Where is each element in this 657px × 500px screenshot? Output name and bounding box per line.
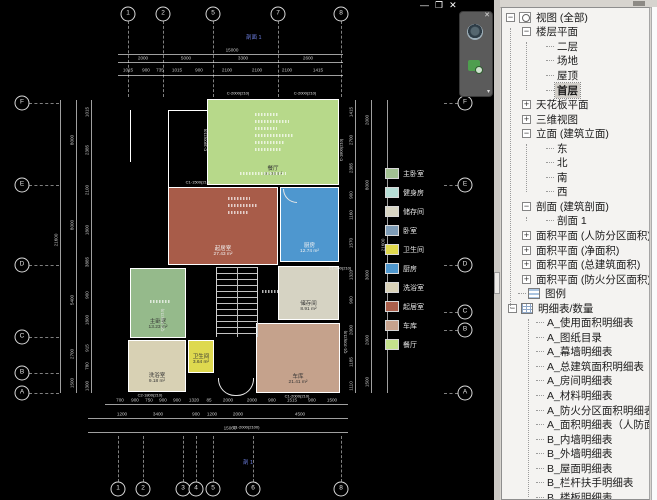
tree-item-A_材料明细表[interactable]: A_材料明细表 (502, 388, 649, 403)
annotation-mark (150, 300, 170, 303)
dim-label: 1160 (349, 210, 354, 220)
dimension-line (355, 100, 356, 393)
tree-scrollbar[interactable] (651, 7, 657, 500)
dim-label: 2385 (85, 145, 90, 155)
dim-label: 2100 (222, 68, 232, 73)
section-mark[interactable]: 剖 1 (243, 458, 253, 466)
grid-bubble-2[interactable]: 2 (136, 482, 151, 497)
tree-item-label: 东 (555, 141, 570, 156)
grid-line (444, 103, 458, 104)
dim-label: 2000 (365, 335, 370, 345)
legend-item[interactable]: 车库 (385, 316, 424, 335)
dim-label: 2000 (349, 325, 354, 335)
dim-label: 8000 (70, 135, 75, 145)
grid-bubble-D[interactable]: D (15, 258, 30, 273)
project-browser-tree: −视图 (全部)−楼层平面二层场地屋顶首层+天花板平面+三维视图−立面 (建筑立… (501, 7, 650, 500)
tree-item-label: B_屋面明细表 (545, 461, 614, 476)
legend-label: 厨房 (403, 264, 417, 274)
tree-item-label: A_图纸目录 (545, 330, 604, 345)
dim-label: 1300 (85, 381, 90, 391)
tree-item-图例[interactable]: 图例 (502, 286, 649, 301)
wall-tag[interactable]: C-1800(210) (339, 139, 344, 161)
grid-bubble-1[interactable]: 1 (111, 482, 126, 497)
dimension-line (60, 100, 61, 393)
dim-label: 21600 (54, 234, 59, 247)
tree-item-label: A_总建筑面积明细表 (545, 359, 646, 374)
tree-connector (536, 337, 544, 338)
annotation-mark (228, 197, 250, 200)
legend-item[interactable]: 健身房 (385, 183, 424, 202)
expand-icon[interactable]: + (522, 246, 531, 255)
dim-label: 2000 (233, 412, 243, 417)
dim-label: 900 (131, 398, 139, 403)
dim-label: 900 (85, 291, 90, 299)
grid-bubble-2[interactable]: 2 (156, 7, 171, 22)
tree-item-label: 屋顶 (555, 68, 580, 83)
panel-header-button[interactable] (633, 1, 645, 6)
dim-label: 1415 (313, 68, 323, 73)
tree-connector (536, 322, 544, 323)
grid-line (444, 393, 458, 394)
grid-line (196, 436, 197, 482)
grid-line (341, 21, 342, 97)
tree-item-首层[interactable]: 首层 (502, 83, 649, 98)
grid-line (278, 21, 279, 97)
collapse-icon[interactable]: − (522, 129, 531, 138)
grid-bubble-F[interactable]: F (15, 96, 30, 111)
dim-label: 900 (195, 68, 203, 73)
tree-item-面积平面--人防分区面积-[interactable]: +面积平面 (人防分区面积) (502, 228, 649, 243)
tree-connector (518, 293, 526, 294)
grid-bubble-4[interactable]: 4 (189, 482, 204, 497)
legend-swatch (385, 225, 399, 236)
legend-item[interactable]: 卫生间 (385, 240, 424, 259)
table-icon (521, 303, 533, 314)
expand-icon[interactable]: + (522, 231, 531, 240)
tree-item-剖面--建筑剖面-[interactable]: −剖面 (建筑剖面) (502, 199, 649, 214)
grid-bubble-A[interactable]: A (458, 386, 473, 401)
legend-item[interactable]: 储存间 (385, 202, 424, 221)
legend-label: 主卧室 (403, 169, 424, 179)
tree-item-label: 明细表/数量 (536, 301, 595, 316)
tree-item-三维视图[interactable]: +三维视图 (502, 112, 649, 127)
tree-connector (536, 482, 544, 483)
tree-item-视图--全部-[interactable]: −视图 (全部) (502, 10, 649, 25)
dim-label: 2000 (365, 115, 370, 125)
tree-item-A_总建筑面积明细表[interactable]: A_总建筑面积明细表 (502, 359, 649, 374)
room-area: 8.91 m² (300, 307, 316, 313)
tree-item-label: B_栏杆扶手明细表 (545, 475, 635, 490)
room-起居室[interactable]: 起居室27.43 m² (168, 187, 278, 265)
annotation-mark (255, 120, 289, 123)
grid-line (341, 436, 342, 482)
grid-bubble-1[interactable]: 1 (121, 7, 136, 22)
dim-label: 700 (116, 398, 124, 403)
legend-label: 洗浴室 (403, 283, 424, 293)
tree-connector (546, 75, 554, 76)
legend-swatch (385, 301, 399, 312)
dim-label: 900 (142, 68, 150, 73)
panel-splitter[interactable] (494, 0, 500, 500)
dim-label: 5400 (70, 295, 75, 305)
dim-label: 2000 (223, 398, 233, 403)
expand-icon[interactable]: + (522, 275, 531, 284)
tree-connector (536, 439, 544, 440)
tree-item-北[interactable]: 北 (502, 155, 649, 170)
annotation-mark (240, 172, 286, 175)
dimension-line (118, 62, 343, 63)
dim-label: 1500 (70, 378, 75, 388)
tree-connector (536, 351, 544, 352)
grid-line (213, 436, 214, 482)
grid-bubble-8[interactable]: 8 (334, 7, 349, 22)
annotation-mark (262, 290, 280, 293)
dim-label: 8000 (365, 180, 370, 190)
zoom-region-icon[interactable] (468, 60, 480, 71)
expand-icon[interactable]: + (522, 260, 531, 269)
dim-label: 1800 (85, 315, 90, 325)
dim-label: 1320 (349, 270, 354, 280)
dimension-line (371, 100, 372, 393)
grid-line (213, 21, 214, 97)
entry-door-arc[interactable] (218, 378, 236, 396)
grid-bubble-7[interactable]: 7 (271, 7, 286, 22)
grid-bubble-F[interactable]: F (458, 96, 473, 111)
stairs[interactable] (216, 267, 258, 337)
project-browser-panel: −视图 (全部)−楼层平面二层场地屋顶首层+天花板平面+三维视图−立面 (建筑立… (500, 0, 657, 500)
close-icon[interactable]: ✕ (449, 0, 457, 12)
tree-item-label: A_面积明细表（人防面积） (545, 417, 650, 432)
dim-label: 3885 (85, 257, 90, 267)
tree-item-label: 视图 (全部) (534, 10, 590, 25)
room-area: 3.64 m² (193, 360, 209, 366)
tree-item-面积平面--净面积-[interactable]: +面积平面 (净面积) (502, 243, 649, 258)
dimension-line (91, 100, 92, 393)
grid-bubble-5[interactable]: 5 (206, 7, 221, 22)
grid-line (29, 265, 59, 266)
annotation-mark (228, 204, 258, 207)
tree-item-面积平面--防火分区面积-[interactable]: +面积平面 (防火分区面积) (502, 272, 649, 287)
annotation-mark (228, 211, 248, 214)
dim-label: 3400 (153, 412, 163, 417)
grid-bubble-D[interactable]: D (458, 258, 473, 273)
dimension-line (88, 432, 348, 433)
grid-bubble-5[interactable]: 5 (206, 482, 221, 497)
dim-label: 1500 (327, 398, 337, 403)
legend-label: 车库 (403, 321, 417, 331)
tree-item-label: A_使用面积明细表 (545, 315, 635, 330)
tree-connector (536, 468, 544, 469)
tree-item-A_幕墙明细表[interactable]: A_幕墙明细表 (502, 345, 649, 360)
tree-item-label: 图例 (543, 286, 568, 301)
tree-item-label: B_楼板明细表 (545, 490, 614, 500)
annotation-mark (255, 134, 293, 137)
dim-label: 1015 (85, 107, 90, 117)
grid-line (118, 436, 119, 482)
tree-item-label: B_内墙明细表 (545, 432, 614, 447)
legend-swatch (385, 339, 399, 350)
legend-swatch (385, 187, 399, 198)
dim-label: 735 (156, 68, 164, 73)
tree-connector (536, 366, 544, 367)
tree-item-label: 立面 (建筑立面) (534, 126, 611, 141)
tree-item-B_栏杆扶手明细表[interactable]: B_栏杆扶手明细表 (502, 476, 649, 491)
tree-item-label: 场地 (555, 53, 580, 68)
tree-item-场地[interactable]: 场地 (502, 54, 649, 69)
tree-item-剖面-1[interactable]: 剖面 1 (502, 214, 649, 229)
tree-spine (526, 217, 527, 221)
tree-connector (536, 395, 544, 396)
collapse-icon[interactable]: − (522, 27, 531, 36)
dim-label: 15000 (224, 426, 237, 431)
dim-label: 1185 (349, 357, 354, 367)
tree-item-A_使用面积明细表[interactable]: A_使用面积明细表 (502, 315, 649, 330)
tree-connector (536, 424, 544, 425)
grid-line (29, 337, 59, 338)
steering-wheel-icon[interactable] (467, 24, 483, 40)
grid-bubble-A[interactable]: A (15, 386, 30, 401)
tree-item-label: A_防火分区面积明细表 (545, 403, 650, 418)
collapse-icon[interactable]: − (506, 13, 515, 22)
grid-line (128, 21, 129, 97)
tree-item-南[interactable]: 南 (502, 170, 649, 185)
tree-spine (510, 28, 511, 308)
legend-label: 卫生间 (403, 245, 424, 255)
grid-bubble-B[interactable]: B (15, 366, 30, 381)
tree-item-二层[interactable]: 二层 (502, 39, 649, 54)
legend-item[interactable]: 卧室 (385, 221, 424, 240)
tree-item-A_防火分区面积明细表[interactable]: A_防火分区面积明细表 (502, 403, 649, 418)
dim-label: 900 (349, 296, 354, 304)
legend-item[interactable]: 厨房 (385, 259, 424, 278)
legend-swatch (385, 263, 399, 274)
grid-line (444, 265, 458, 266)
tree-item-A_面积明细表-人防面积-[interactable]: A_面积明细表（人防面积） (502, 417, 649, 432)
wall-segment (130, 110, 131, 162)
legend-swatch (385, 206, 399, 217)
tree-item-西[interactable]: 西 (502, 185, 649, 200)
dim-label: 2385 (349, 163, 354, 173)
tree-item-屋顶[interactable]: 屋顶 (502, 68, 649, 83)
dimension-line (88, 418, 348, 419)
legend-icon (528, 288, 540, 299)
dim-label: 85 (206, 398, 211, 403)
dim-label: 3300 (238, 56, 248, 61)
wall-segment (168, 110, 208, 111)
tree-connector (536, 497, 544, 498)
grid-line (29, 373, 59, 374)
tree-item-label: 剖面 1 (555, 213, 589, 228)
tree-item-楼层平面[interactable]: −楼层平面 (502, 25, 649, 40)
dim-label: 900 (308, 398, 316, 403)
tree-item-面积平面--总建筑面积-[interactable]: +面积平面 (总建筑面积) (502, 257, 649, 272)
room-area: 9.18 m² (149, 379, 165, 385)
grid-bubble-C[interactable]: C (458, 305, 473, 320)
tree-item-label: 面积平面 (净面积) (534, 243, 621, 258)
wall-tag[interactable]: Q1-200(210) (160, 309, 165, 332)
tree-item-天花板平面[interactable]: +天花板平面 (502, 97, 649, 112)
grid-line (444, 312, 458, 313)
tree-item-B_楼板明细表[interactable]: B_楼板明细表 (502, 490, 649, 500)
legend-label: 卧室 (403, 226, 417, 236)
chevron-down-icon[interactable]: ▾ (487, 89, 490, 96)
restore-icon[interactable]: ❐ (435, 0, 443, 12)
room-储存间[interactable]: 储存间8.91 m² (278, 266, 339, 320)
dim-label: 1515 (287, 398, 297, 403)
legend-swatch (385, 244, 399, 255)
tree-spine (526, 42, 527, 90)
tree-item-A_房间明细表[interactable]: A_房间明细表 (502, 374, 649, 389)
tree-spine (528, 319, 529, 498)
room-area: 13.23 m² (149, 325, 168, 331)
tree-item-label: A_材料明细表 (545, 388, 614, 403)
dimension-line (76, 100, 77, 393)
tree-item-label: 三维视图 (534, 112, 580, 127)
dim-label: 5000 (181, 56, 191, 61)
room-area: 27.43 m² (214, 252, 233, 258)
room-洗浴室[interactable]: 洗浴室9.18 m² (128, 340, 186, 392)
legend-item[interactable]: 起居室 (385, 297, 424, 316)
dim-label: 1200 (207, 412, 217, 417)
dim-label: 2000 (138, 56, 148, 61)
wall-segment (168, 110, 169, 187)
navigation-bar[interactable]: ✕ ▾ (459, 11, 493, 97)
tree-item-label: A_房间明细表 (545, 373, 614, 388)
dim-label: 915 (85, 344, 90, 352)
legend-swatch (385, 282, 399, 293)
tree-item-B_内墙明细表[interactable]: B_内墙明细表 (502, 432, 649, 447)
grid-line (163, 21, 164, 97)
legend-label: 餐厅 (403, 340, 417, 350)
grid-bubble-E[interactable]: E (458, 178, 473, 193)
tree-item-A_图纸目录[interactable]: A_图纸目录 (502, 330, 649, 345)
tree-item-label: 天花板平面 (534, 97, 591, 112)
wall-tag[interactable]: C-2000(210) (294, 91, 316, 96)
grid-line (143, 436, 144, 482)
room-legend[interactable]: 主卧室健身房储存间卧室卫生间厨房洗浴室起居室车库餐厅 (385, 164, 424, 354)
dim-label: 1800 (85, 225, 90, 235)
dim-label: 1415 (349, 107, 354, 117)
tree-connector (536, 453, 544, 454)
tree-item-label: 首层 (555, 83, 580, 98)
tree-item-label: 二层 (555, 39, 580, 54)
grid-line (253, 436, 254, 482)
dim-label: 2700 (70, 349, 75, 359)
tree-item-label: B_外墙明细表 (545, 446, 614, 461)
tree-item-明细表-数量[interactable]: −明细表/数量 (502, 301, 649, 316)
dim-label: 1570 (349, 238, 354, 248)
dimension-line (118, 75, 343, 76)
dim-label: 1320 (189, 398, 199, 403)
tree-item-label: A_幕墙明细表 (545, 344, 614, 359)
tree-item-label: 楼层平面 (534, 24, 580, 39)
legend-item[interactable]: 主卧室 (385, 164, 424, 183)
collapse-icon[interactable]: − (522, 202, 531, 211)
tree-connector (546, 60, 554, 61)
annotation-mark (255, 148, 281, 151)
grid-bubble-E[interactable]: E (15, 178, 30, 193)
dim-label: 2600 (303, 56, 313, 61)
splitter-grip-icon[interactable] (494, 272, 500, 294)
grid-line (29, 103, 59, 104)
tree-connector (546, 177, 554, 178)
grid-bubble-6[interactable]: 6 (246, 482, 261, 497)
room-主卧室[interactable]: 主卧室13.23 m² (130, 268, 186, 338)
tree-item-label: 剖面 (建筑剖面) (534, 199, 611, 214)
tree-item-东[interactable]: 东 (502, 141, 649, 156)
wall-tag[interactable]: C1-1500(210) (186, 180, 211, 185)
dim-label: 4500 (295, 412, 305, 417)
legend-item[interactable]: 餐厅 (385, 335, 424, 354)
wall-tag[interactable]: C-2000(210) (227, 91, 249, 96)
tree-item-立面--建筑立面-[interactable]: −立面 (建筑立面) (502, 126, 649, 141)
annotation-mark (255, 127, 277, 130)
minimize-icon[interactable]: — (420, 0, 429, 12)
tree-connector (546, 162, 554, 163)
expand-icon[interactable]: + (522, 115, 531, 124)
annotation-mark (255, 113, 279, 116)
dim-label: 15000 (226, 48, 239, 53)
tree-connector (536, 380, 544, 381)
view-window-controls: — ❐ ✕ (420, 0, 494, 12)
dim-label: 8000 (70, 220, 75, 230)
dim-label: 900 (192, 412, 200, 417)
room-卫生间[interactable]: 卫生间3.64 m² (188, 340, 214, 373)
tree-connector (546, 90, 554, 91)
tree-connector (546, 191, 554, 192)
legend-item[interactable]: 洗浴室 (385, 278, 424, 297)
dim-label: 1200 (117, 412, 127, 417)
grid-bubble-B[interactable]: B (458, 323, 473, 338)
grid-bubble-C[interactable]: C (15, 330, 30, 345)
expand-icon[interactable]: + (522, 100, 531, 109)
drawing-viewport[interactable]: — ❐ ✕ ✕ ▾ 餐厅46.08 m²起居室27.43 m²厨房12.74 m… (0, 0, 494, 500)
wall-tag[interactable]: C-1800(210) (203, 129, 208, 151)
grid-line (183, 436, 184, 482)
revit-window: — ❐ ✕ ✕ ▾ 餐厅46.08 m²起居室27.43 m²厨房12.74 m… (0, 0, 657, 500)
dim-label: 2700 (349, 135, 354, 145)
tree-spine (526, 144, 527, 192)
tree-item-B_屋面明细表[interactable]: B_屋面明细表 (502, 461, 649, 476)
wall-tag[interactable]: Q1-200(210) (343, 331, 348, 354)
tree-connector (546, 148, 554, 149)
legend-swatch (385, 168, 399, 179)
navbar-close-icon[interactable]: ✕ (484, 12, 490, 20)
dim-label: 900 (349, 191, 354, 199)
legend-label: 储存间 (403, 207, 424, 217)
room-车库[interactable]: 车库21.41 m² (256, 323, 340, 393)
legend-label: 健身房 (403, 188, 424, 198)
tree-item-B_外墙明细表[interactable]: B_外墙明细表 (502, 446, 649, 461)
tree-item-label: 面积平面 (总建筑面积) (534, 257, 642, 272)
tree-connector (546, 46, 554, 47)
dim-label: 2100 (252, 68, 262, 73)
dim-label: 900 (159, 398, 167, 403)
dim-label: 750 (145, 398, 153, 403)
grid-line (29, 185, 59, 186)
tree-item-label: 面积平面 (防火分区面积) (534, 272, 650, 287)
tree-item-label: 北 (555, 155, 570, 170)
tree-item-label: 面积平面 (人防分区面积) (534, 228, 650, 243)
grid-line (29, 393, 59, 394)
entry-door-arc[interactable] (236, 378, 254, 396)
section-mark[interactable]: 剖面 1 (246, 33, 262, 41)
views-icon (519, 12, 531, 23)
legend-swatch (385, 320, 399, 331)
grid-bubble-8[interactable]: 8 (334, 482, 349, 497)
dim-label: 1015 (123, 68, 133, 73)
dim-label: 2100 (85, 185, 90, 195)
